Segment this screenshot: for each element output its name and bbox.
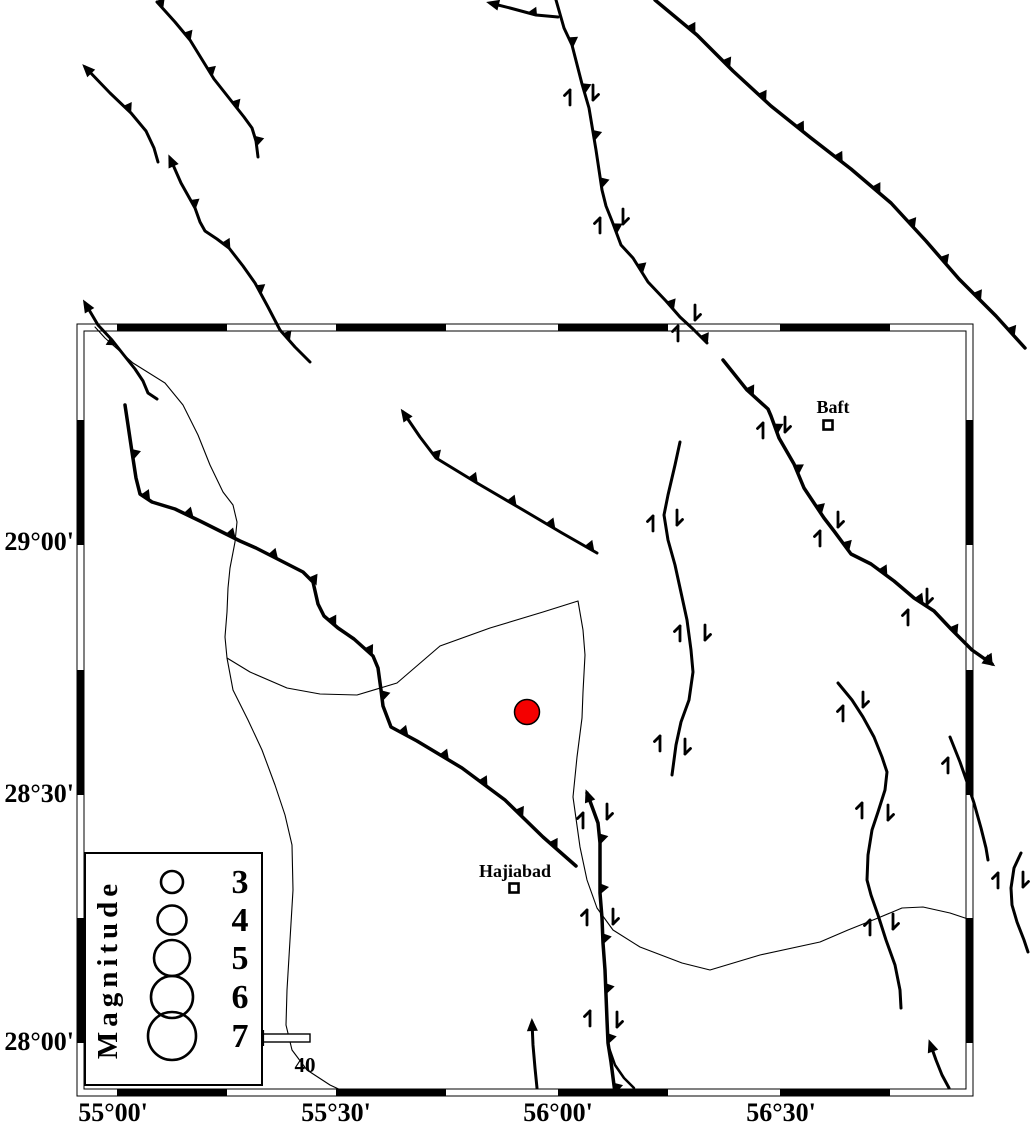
frame-tick-top [117,324,227,331]
lat-label: 28°30' [4,779,74,808]
lon-label: 55°30' [301,1098,371,1127]
magnitude-legend: Magnitude34567 [85,853,262,1085]
map-canvas: BaftHajiabadMagnitude345674029°00'28°30'… [0,0,1030,1127]
scale-bar-label: 40 [295,1053,316,1077]
magnitude-value: 3 [232,864,249,901]
earthquake-epicenter [515,700,540,725]
frame-tick-right [966,420,973,545]
lon-label: 55°00' [78,1098,148,1127]
frame-tick-bottom [780,1089,890,1096]
lat-label: 29°00' [4,527,74,556]
frame-tick-left [77,420,84,545]
frame-tick-top [558,324,668,331]
frame-tick-bottom [336,1089,446,1096]
frame-tick-right [966,670,973,795]
city-label: Baft [817,397,850,417]
magnitude-value: 5 [232,940,249,977]
city-label: Hajiabad [479,861,551,881]
magnitude-value: 7 [232,1018,249,1055]
frame-tick-top [780,324,890,331]
scale-bar-rect [263,1034,310,1042]
seismotectonic-map: BaftHajiabadMagnitude345674029°00'28°30'… [0,0,1030,1132]
magnitude-value: 6 [232,979,249,1016]
city-marker [824,421,833,430]
frame-tick-left [77,670,84,795]
lon-label: 56°30' [746,1098,816,1127]
lat-label: 28°00' [4,1027,74,1056]
frame-tick-bottom [117,1089,227,1096]
frame-tick-top [336,324,446,331]
magnitude-value: 4 [232,902,249,939]
frame-tick-left [77,918,84,1043]
city-marker [510,884,519,893]
frame-tick-right [966,918,973,1043]
legend-title: Magnitude [92,879,124,1059]
lon-label: 56°00' [523,1098,593,1127]
